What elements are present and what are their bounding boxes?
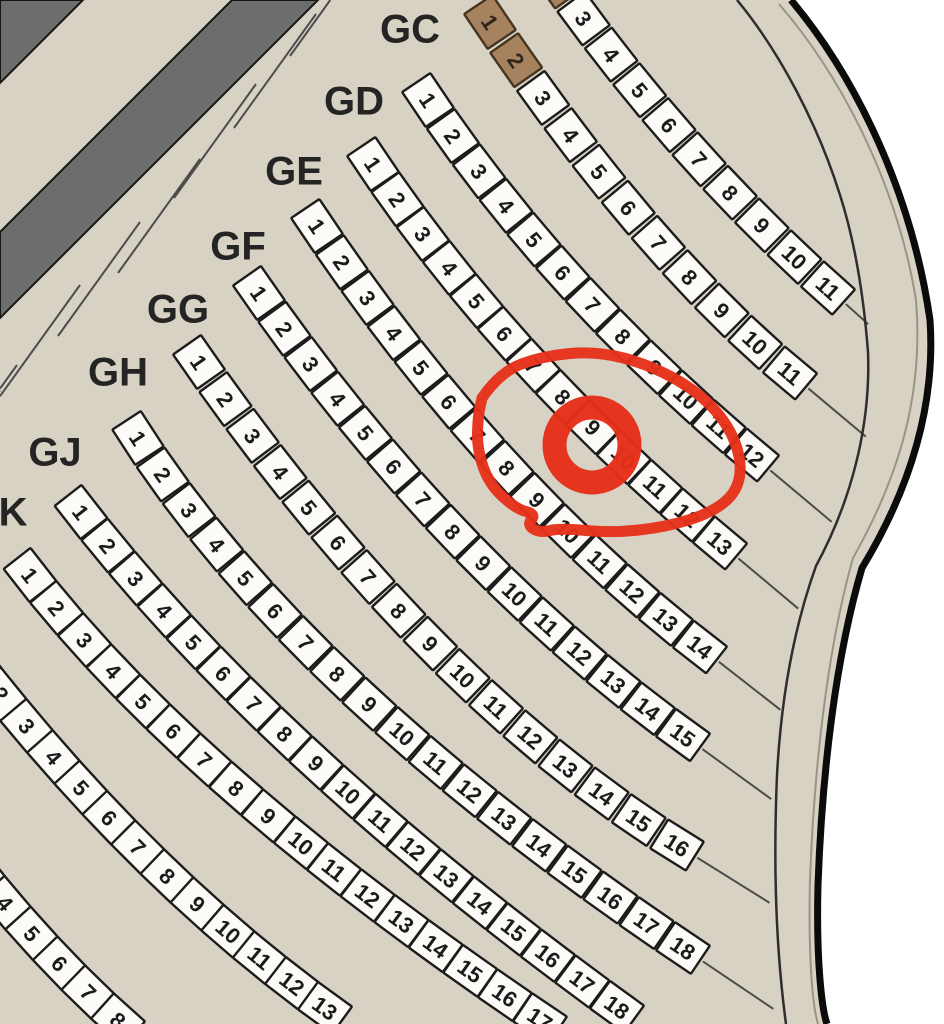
row-label-GG: GG xyxy=(147,287,209,331)
row-label-GJ: GJ xyxy=(28,430,81,474)
seat-map-svg: 1234567891011123456789101112345678910111… xyxy=(0,0,944,1024)
row-label-GD: GD xyxy=(324,79,384,123)
seat-map: 1234567891011123456789101112345678910111… xyxy=(0,0,944,1024)
row-label-GF: GF xyxy=(210,224,266,268)
row-label-GH: GH xyxy=(88,350,148,394)
row-label-GC: GC xyxy=(380,7,440,51)
row-label-GE: GE xyxy=(265,149,323,193)
row-label-K: K xyxy=(0,490,28,534)
